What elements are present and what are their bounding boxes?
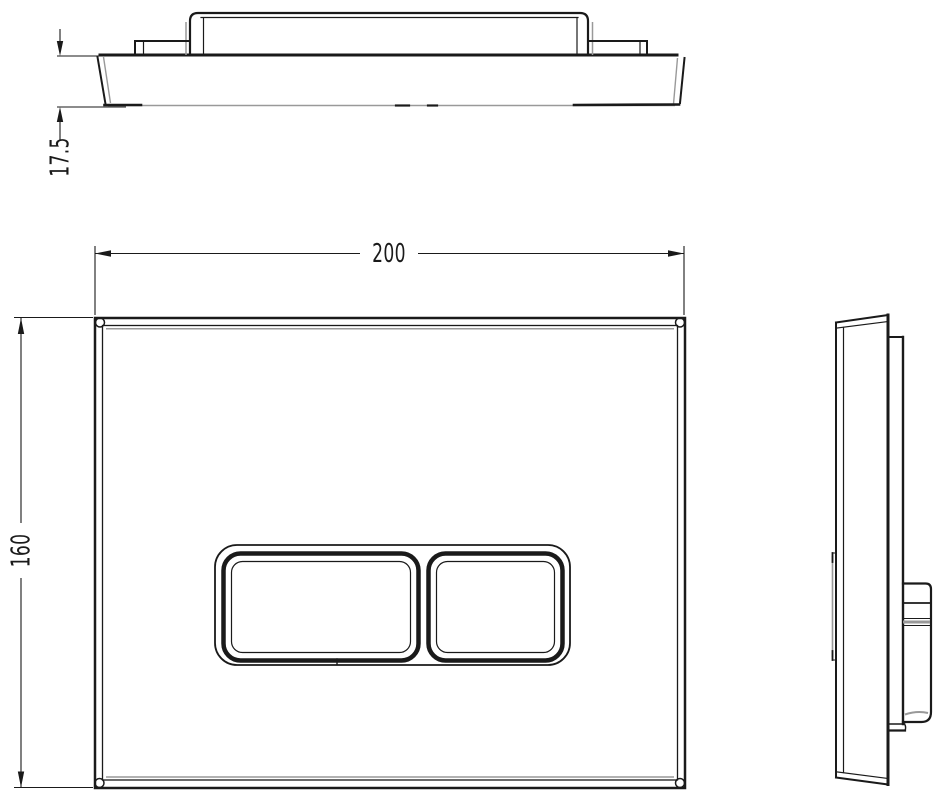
top-view: 17.5	[46, 13, 684, 177]
corner-detail-bottom-left	[95, 779, 104, 788]
left-flush-button	[224, 554, 419, 665]
side-view-plate	[833, 315, 889, 785]
side-view	[833, 315, 932, 785]
button-recess	[215, 545, 570, 665]
thickness-label: 17.5	[46, 137, 76, 177]
dimension-plate-thickness: 17.5	[46, 29, 126, 177]
front-view: 200 160	[7, 240, 685, 788]
top-view-mount-block	[186, 13, 593, 55]
technical-drawing-canvas: 17.5	[0, 0, 946, 801]
top-view-left-clip	[135, 41, 190, 55]
side-view-actuator-block	[903, 584, 931, 723]
width-label: 200	[372, 240, 406, 270]
side-view-mount-frame	[888, 337, 906, 731]
top-view-body	[98, 55, 685, 106]
dimension-plate-height: 160	[7, 318, 93, 788]
corner-detail-top-right	[676, 318, 685, 327]
right-flush-button	[429, 554, 563, 661]
corner-detail-top-left	[96, 318, 105, 327]
corner-detail-bottom-right	[676, 779, 685, 788]
flush-plate-drawing: 17.5	[0, 0, 946, 801]
height-label: 160	[7, 534, 37, 568]
top-view-right-clip	[588, 41, 647, 55]
dimension-plate-width: 200	[95, 240, 684, 315]
